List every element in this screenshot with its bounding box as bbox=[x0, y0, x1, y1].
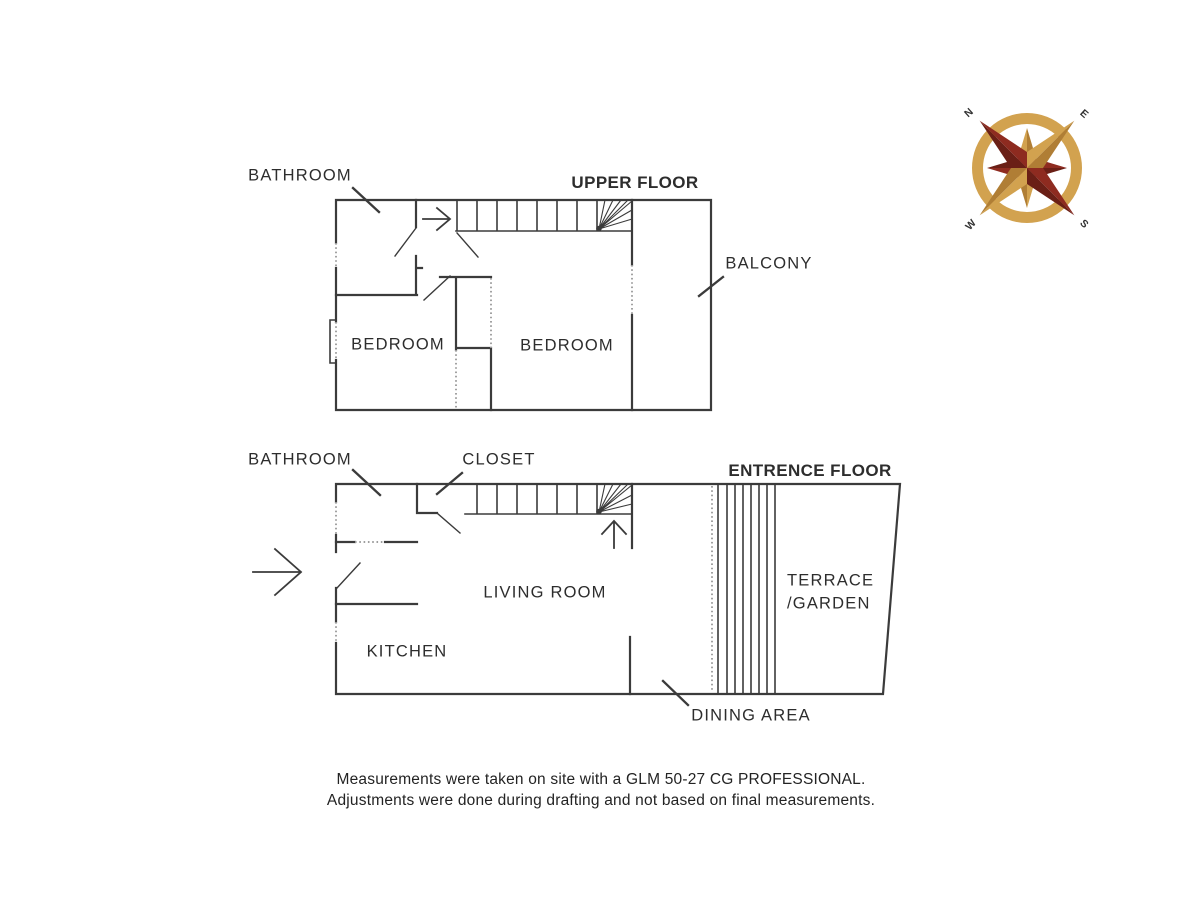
compass-north-letter: N bbox=[962, 106, 976, 120]
label-bedroom-left: BEDROOM bbox=[351, 336, 445, 355]
compass-west-letter: W bbox=[963, 217, 979, 232]
entrance-bathroom-walls bbox=[336, 484, 437, 542]
entry-arrow-icon bbox=[253, 549, 301, 595]
label-living-room: LIVING ROOM bbox=[483, 584, 606, 603]
upper-leader-lines bbox=[353, 188, 723, 296]
label-closet: CLOSET bbox=[462, 451, 535, 470]
upper-closet-walls bbox=[440, 277, 491, 410]
upper-stair-winder-fan bbox=[599, 200, 632, 229]
upper-dotted-openings bbox=[336, 243, 632, 408]
label-upper-bathroom: BATHROOM bbox=[248, 167, 352, 186]
label-kitchen: KITCHEN bbox=[367, 643, 448, 662]
label-entrance-bathroom: BATHROOM bbox=[248, 451, 352, 470]
entrance-stair-winder-fan bbox=[599, 484, 632, 512]
entrance-door-leaves bbox=[337, 513, 460, 588]
label-terrace-line2: /GARDEN bbox=[787, 595, 871, 614]
upper-door-leaves bbox=[395, 228, 478, 300]
upper-floor-title: UPPER FLOOR bbox=[571, 173, 698, 193]
label-balcony: BALCONY bbox=[725, 255, 812, 274]
entrance-stair-winder-hub bbox=[596, 509, 602, 515]
terrace-deck-stripes bbox=[718, 484, 775, 694]
entrance-interior-walls bbox=[630, 484, 632, 694]
compass-south-letter: S bbox=[1077, 217, 1090, 230]
label-terrace-line1: TERRACE bbox=[787, 572, 874, 591]
entrance-floor-title: ENTRENCE FLOOR bbox=[728, 461, 891, 481]
floor-plan-drawing: N E W S bbox=[0, 0, 1200, 900]
label-dining-area: DINING AREA bbox=[691, 707, 811, 726]
entrance-stair-treads bbox=[465, 484, 632, 514]
stairs-up-arrow-icon bbox=[602, 521, 626, 548]
upper-stair-direction-arrow-icon bbox=[423, 208, 450, 230]
upper-stair-winder-hub bbox=[596, 226, 602, 232]
label-bedroom-right: BEDROOM bbox=[520, 337, 614, 356]
footer-note-line2: Adjustments were done during drafting an… bbox=[327, 792, 875, 810]
upper-floor-plan bbox=[330, 188, 723, 410]
compass-rose-icon: N E W S bbox=[962, 106, 1091, 233]
footer-note-line1: Measurements were taken on site with a G… bbox=[336, 771, 865, 789]
floor-plan-page: N E W S BATHROOM UPPER FLOOR BALCONY BED… bbox=[0, 0, 1200, 900]
upper-bathroom-walls bbox=[336, 200, 422, 295]
compass-east-letter: E bbox=[1077, 107, 1090, 121]
